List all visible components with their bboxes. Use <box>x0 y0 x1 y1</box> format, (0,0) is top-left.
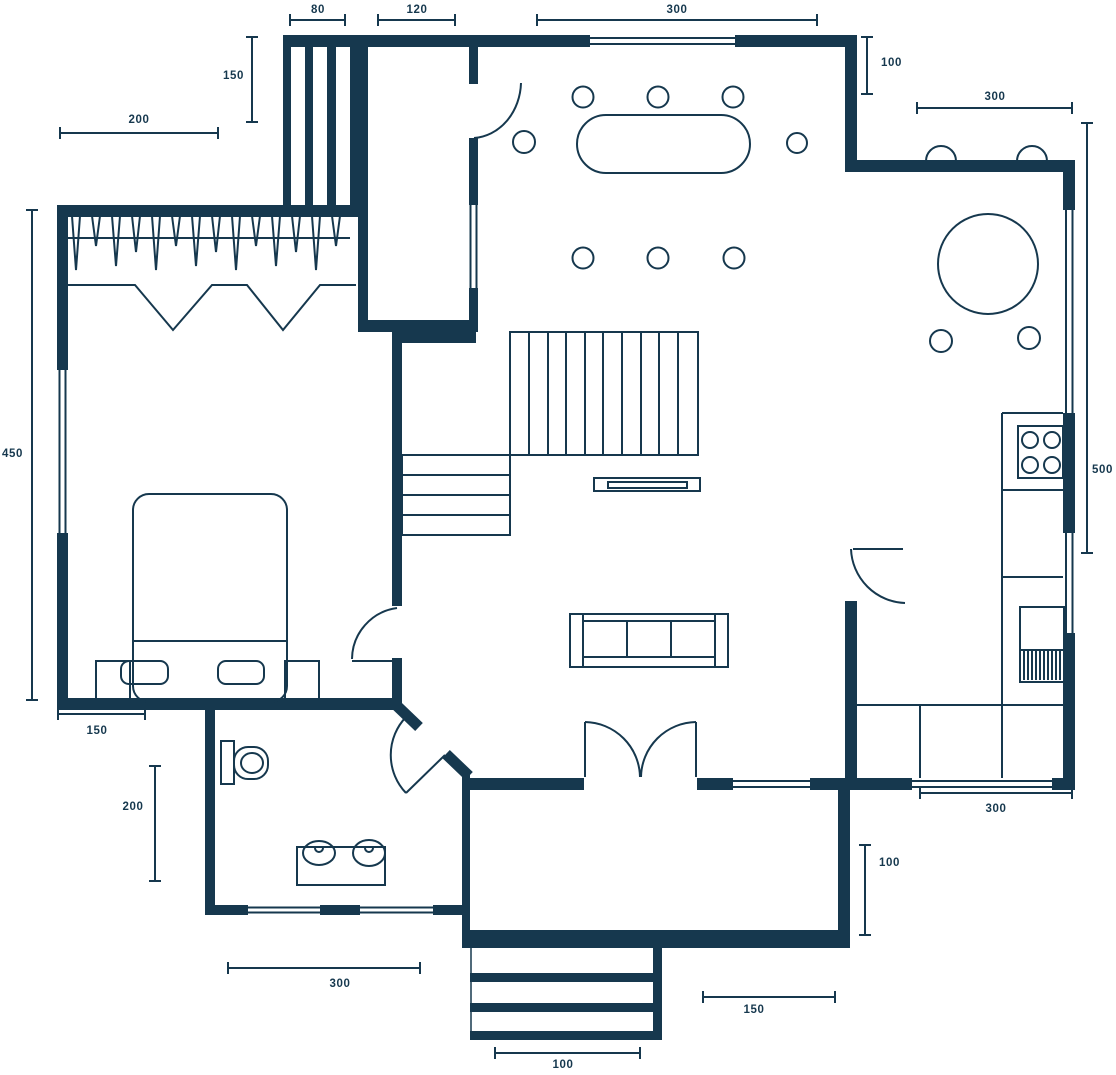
wall-chamfer-2 <box>446 754 469 776</box>
dim-label-right-300-top: 300 <box>985 91 1006 103</box>
wall-bath-left <box>205 698 215 915</box>
wall-dining-kitchen <box>845 35 857 163</box>
dim-label-bottom-300: 300 <box>330 978 351 990</box>
wall-corridor-bottom <box>358 320 478 332</box>
dim-label-left-200-bath: 200 <box>123 801 144 813</box>
wall-entry-bottom <box>462 930 850 948</box>
dining-chair <box>724 248 745 269</box>
dim-line-right-100-top <box>861 37 873 94</box>
kitchen-chair <box>930 330 952 352</box>
wall-stair-top <box>402 331 476 343</box>
dim-line-left-200-bath <box>149 766 161 881</box>
dim-label-left-200: 200 <box>129 114 150 126</box>
dim-label-right-100-top: 100 <box>881 57 902 69</box>
porch-steps <box>470 948 662 1040</box>
dim-label-right-100-bottom: 100 <box>879 857 900 869</box>
dining-chair <box>573 248 594 269</box>
dim-label-top-120: 120 <box>407 4 428 16</box>
dim-label-right-300-bottom: 300 <box>986 803 1007 815</box>
wardrobe <box>68 216 356 330</box>
tv-console <box>594 478 700 491</box>
closet-partitions <box>283 47 358 205</box>
window-bath-south-1 <box>248 908 320 913</box>
wall-corridor-left <box>358 47 368 332</box>
staircase <box>402 332 698 535</box>
wall-entry-left <box>462 775 470 948</box>
door-bathroom-corner <box>391 717 445 793</box>
dim-line-bottom-100 <box>495 1047 640 1059</box>
stair-treads <box>529 333 678 454</box>
dim-label-top-80: 80 <box>311 4 325 16</box>
dining-chair <box>648 87 669 108</box>
window-dining-top <box>590 38 735 44</box>
toilet <box>221 741 268 784</box>
wall-corridor-right-2 <box>469 138 478 205</box>
wall-entry-right <box>838 790 850 948</box>
faucet <box>365 848 373 852</box>
dim-label-left-450: 450 <box>2 448 23 460</box>
dim-line-left-450 <box>26 210 38 700</box>
double-vanity <box>297 840 385 885</box>
kitchen-chair <box>1017 146 1047 161</box>
kitchen-counter <box>857 413 1063 778</box>
dining-chair <box>787 133 807 153</box>
dim-line-left-200 <box>60 127 218 139</box>
dim-line-bottom-150 <box>703 991 835 1003</box>
dim-line-right-300-bottom <box>920 787 1072 799</box>
dim-label-bottom-100: 100 <box>553 1059 574 1070</box>
wall-chamfer-1 <box>395 704 419 727</box>
bedroom-area <box>68 216 356 702</box>
bathroom-area <box>221 741 385 885</box>
dim-line-left-150 <box>246 37 258 122</box>
floor-plan-page: 80 120 300 150 200 450 150 200 300 100 1… <box>0 0 1116 1070</box>
wall-kitchen-top <box>845 160 1075 172</box>
window-kitchen-right-2 <box>1066 533 1073 633</box>
dining-chair <box>723 87 744 108</box>
door-bedroom-hall <box>352 608 397 661</box>
wall-kitchen-right-2 <box>1063 413 1075 533</box>
wardrobe-hangers <box>72 216 340 270</box>
wall-stair-left <box>392 331 402 606</box>
exterior-walls <box>57 35 1075 948</box>
dining-set <box>513 87 807 269</box>
floor-plan-canvas: 80 120 300 150 200 450 150 200 300 100 1… <box>0 0 1116 1070</box>
wall-bedroom-left-1 <box>57 205 68 370</box>
wall-bedroom-top <box>57 205 367 217</box>
dim-line-right-100-bottom <box>859 845 871 935</box>
wall-kitchen-right-1 <box>1063 160 1075 210</box>
wall-corridor-right-1 <box>469 47 478 84</box>
wall-bath-bottom-1 <box>205 905 248 915</box>
pillow <box>218 661 264 684</box>
wall-top-right <box>735 35 857 47</box>
wall-bath-bottom-2 <box>320 905 360 915</box>
dim-line-bottom-300 <box>228 962 420 974</box>
dim-label-top-300: 300 <box>667 4 688 16</box>
dining-table <box>577 115 750 173</box>
window-kitchen-right-1 <box>1066 210 1073 413</box>
window-kitchen-south <box>912 781 1052 787</box>
dim-label-right-500: 500 <box>1092 464 1113 476</box>
pillow <box>121 661 168 684</box>
dim-label-bottom-150: 150 <box>744 1004 765 1016</box>
double-door-living-entry <box>585 722 696 777</box>
wall-top-left <box>283 35 590 47</box>
window-corridor <box>471 205 477 288</box>
wall-south-1 <box>470 778 584 790</box>
kitchen-chair <box>926 146 956 161</box>
door-swing-corridor <box>474 83 521 138</box>
dim-line-right-500 <box>1081 123 1093 553</box>
stove <box>1018 426 1063 478</box>
nightstand <box>285 661 319 700</box>
wardrobe-front <box>68 285 356 330</box>
dining-chair <box>513 131 535 153</box>
door-kitchen <box>851 549 905 603</box>
wall-bedroom-left-2 <box>57 533 68 710</box>
nightstand <box>96 661 130 700</box>
faucet <box>315 848 323 852</box>
window-living-south <box>733 781 810 787</box>
dim-label-left-150: 150 <box>223 70 244 82</box>
kitchen-area <box>857 146 1064 778</box>
stair-lower-steps <box>402 475 510 515</box>
wall-south-2 <box>697 778 733 790</box>
wall-kitchen-living <box>845 601 857 790</box>
dining-chair <box>573 87 594 108</box>
kitchen-table <box>938 214 1038 314</box>
bed <box>96 494 319 702</box>
doors <box>352 83 905 793</box>
wall-south-3 <box>810 778 912 790</box>
dim-line-right-300-top <box>917 102 1072 114</box>
dining-chair <box>648 248 669 269</box>
dim-label-left-150-bed: 150 <box>87 725 108 737</box>
sofa <box>570 614 728 667</box>
window-bath-south-2 <box>360 908 433 913</box>
sink-cabinet <box>1020 607 1064 682</box>
window-bedroom-left <box>60 370 66 533</box>
kitchen-chair <box>1018 327 1040 349</box>
